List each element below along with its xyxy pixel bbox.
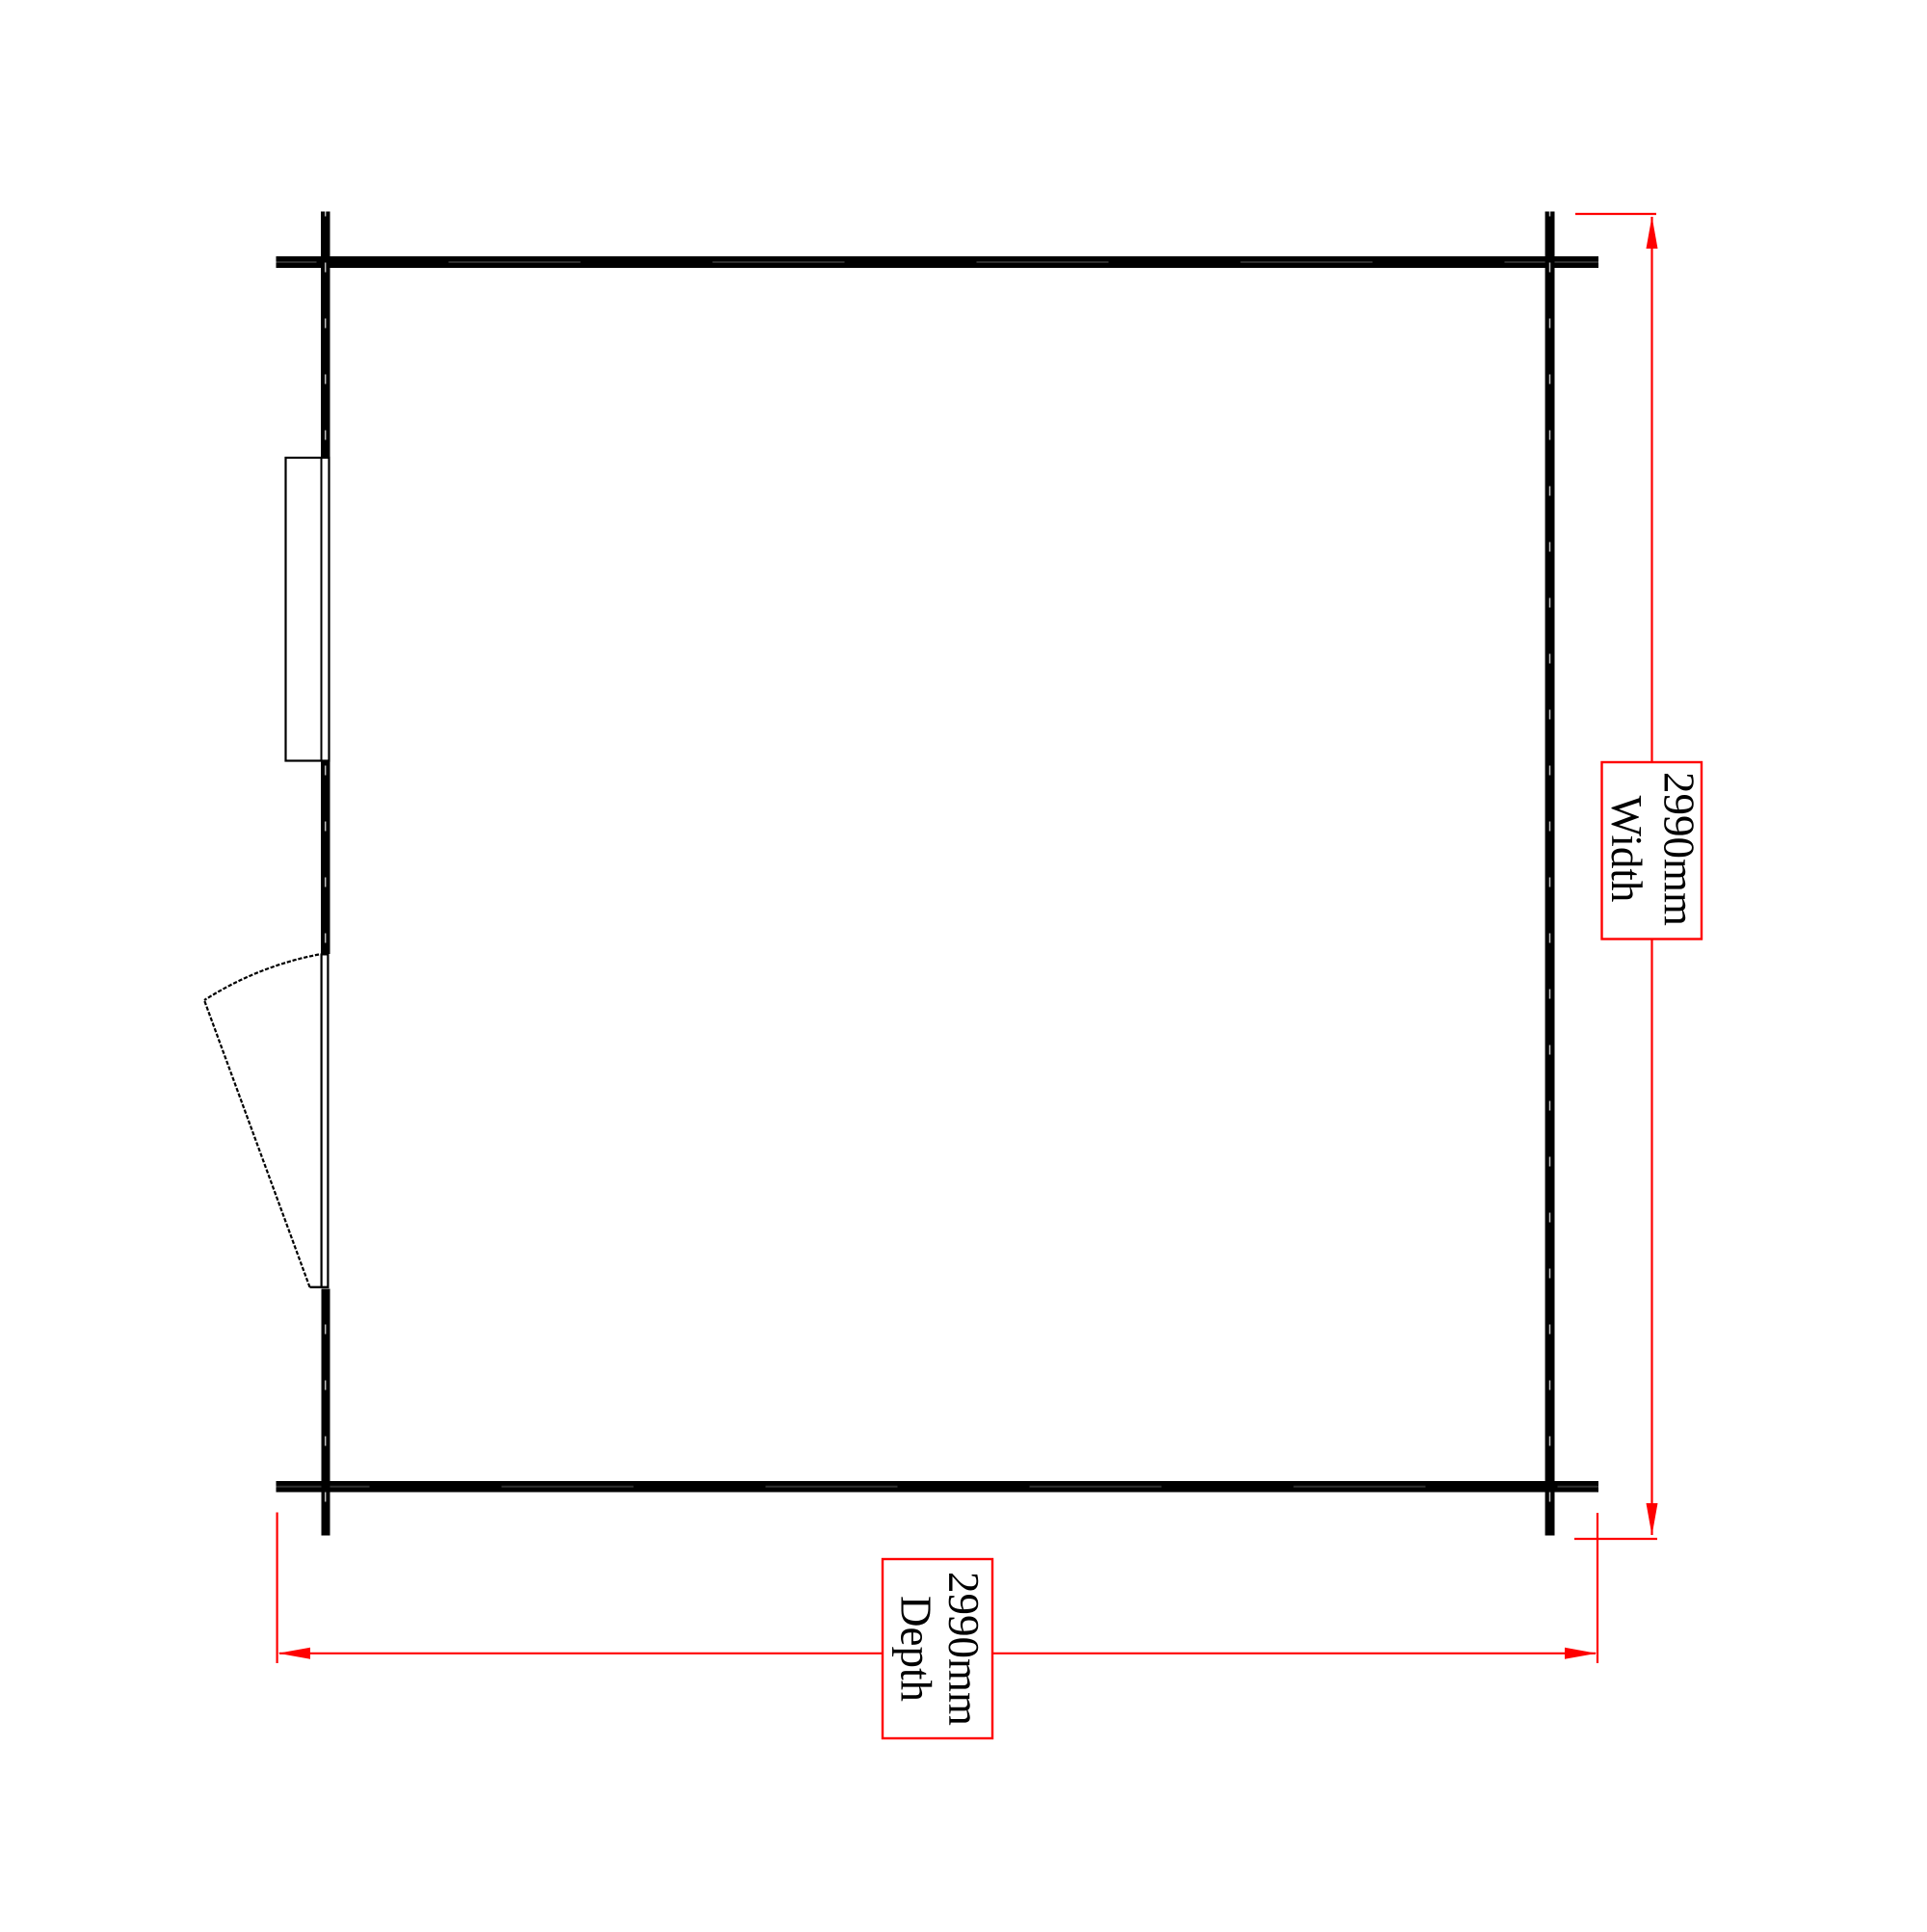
svg-text:2990mm: 2990mm xyxy=(1655,772,1703,926)
svg-text:Depth: Depth xyxy=(892,1596,940,1702)
svg-text:2990mm: 2990mm xyxy=(939,1572,988,1726)
svg-text:Width: Width xyxy=(1602,796,1650,903)
